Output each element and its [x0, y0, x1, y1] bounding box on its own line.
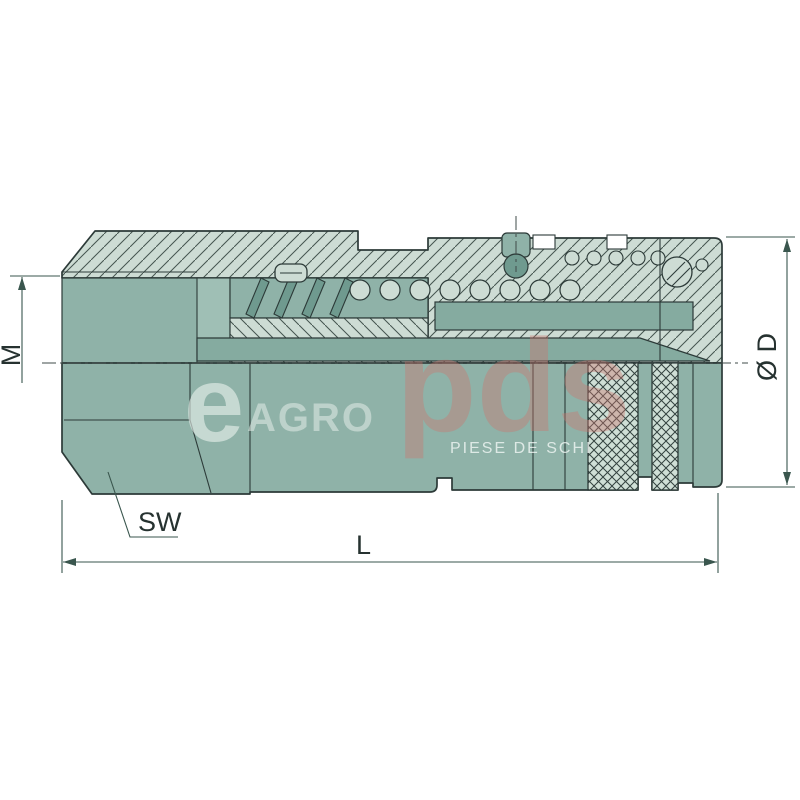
watermark-logo-agro: AGRO [247, 396, 375, 440]
technical-drawing-page: e AGRO pds PIESE DE SCHI M Ø D SW [0, 0, 800, 800]
knurl-band-narrow [652, 363, 678, 490]
small-ball [696, 259, 708, 271]
d-arrow-top [783, 239, 791, 252]
dim-label-sw: SW [138, 507, 182, 537]
top-notch-right [607, 235, 627, 249]
dim-label-d: Ø D [752, 333, 782, 381]
dimension-d: Ø D [726, 237, 795, 487]
dim-label-m: M [0, 344, 26, 367]
dim-label-l: L [356, 530, 371, 560]
m-arrow [18, 277, 26, 290]
d-arrow-bottom [783, 472, 791, 485]
l-arrow-right [704, 558, 717, 566]
coupling-technical-drawing: e AGRO pds PIESE DE SCHI M Ø D SW [0, 0, 800, 800]
top-notch-left [533, 235, 555, 249]
l-arrow-left [63, 558, 76, 566]
watermark-logo-e: e [184, 343, 244, 464]
watermark-logo-pds: pds [396, 312, 631, 459]
locking-ball [662, 257, 692, 287]
dimension-m: M [0, 276, 60, 383]
watermark-tagline: PIESE DE SCHI [450, 440, 592, 457]
